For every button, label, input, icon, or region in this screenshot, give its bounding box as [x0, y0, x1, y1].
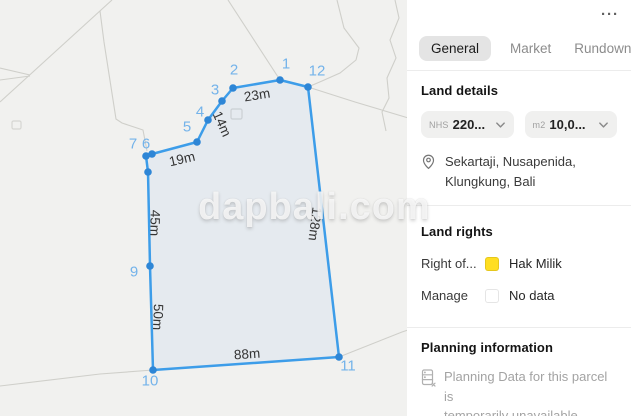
vertex-number-label: 10: [142, 373, 159, 390]
road-line: [308, 87, 415, 120]
right-of-value: Hak Milik: [509, 256, 562, 271]
building-footprint: [12, 121, 21, 129]
location-pin-icon: [421, 153, 436, 170]
vertex-number-label: 12: [309, 63, 326, 80]
parcel-vertex-dot: [218, 97, 226, 105]
planning-section: Planning information Planning Data for t…: [407, 328, 631, 416]
parcel-id-dropdown[interactable]: NHS 220...: [421, 111, 514, 138]
land-details-heading: Land details: [421, 83, 617, 98]
vertex-number-label: 2: [230, 62, 238, 79]
land-detail-chips: NHS 220... m2 10,0...: [421, 111, 617, 138]
area-label: m2: [533, 120, 546, 130]
details-panel: ··· General Market Rundown Land details …: [407, 0, 631, 416]
location-row: Sekartaji, Nusapenida, Klungkung, Bali: [421, 152, 617, 191]
planning-message-line2: temporarily unavailable: [444, 406, 617, 416]
location-line2: Klungkung, Bali: [445, 172, 576, 192]
vertex-number-label: 4: [196, 104, 204, 121]
planning-message: Planning Data for this parcel is tempora…: [444, 367, 617, 416]
road-line: [0, 370, 153, 386]
vertex-number-label: 7: [129, 136, 137, 153]
vertex-number-label: 9: [130, 264, 138, 281]
parcel-vertex-dot: [142, 152, 150, 160]
road-line: [0, 68, 30, 75]
road-line: [100, 11, 147, 151]
parcel-id-label: NHS: [429, 120, 449, 130]
app-window: 1234567910111223m14m19m45m50m88m128m dap…: [0, 0, 631, 416]
right-of-label: Right of...: [421, 256, 485, 271]
land-rights-section: Land rights Right of... Hak Milik Manage…: [407, 206, 631, 327]
location-line1: Sekartaji, Nusapenida,: [445, 152, 576, 172]
manage-value: No data: [509, 288, 555, 303]
manage-row: Manage No data: [421, 288, 617, 303]
parcel-vertex-dot: [204, 116, 212, 124]
tab-bar: General Market Rundown: [407, 0, 631, 61]
edge-length-label: 45m: [147, 210, 162, 237]
right-of-color-swatch: [485, 257, 499, 271]
area-dropdown[interactable]: m2 10,0...: [525, 111, 618, 138]
parcel-vertex-dot: [276, 76, 284, 84]
planning-message-line1: Planning Data for this parcel is: [444, 367, 617, 406]
vertex-number-label: 6: [142, 136, 150, 153]
manage-label: Manage: [421, 288, 485, 303]
right-of-row: Right of... Hak Milik: [421, 256, 617, 271]
planning-message-row: Planning Data for this parcel is tempora…: [421, 367, 617, 416]
chevron-down-icon: [495, 121, 506, 129]
planning-heading: Planning information: [421, 340, 617, 355]
parcel-vertex-dot: [144, 168, 152, 176]
land-rights-heading: Land rights: [421, 224, 617, 239]
vertex-number-label: 11: [340, 358, 356, 375]
tab-general[interactable]: General: [419, 36, 491, 61]
edge-length-label: 50m: [150, 304, 166, 331]
manage-color-swatch: [485, 289, 499, 303]
parcel-id-value: 220...: [453, 117, 489, 132]
parcel-vertex-dot: [304, 83, 312, 91]
tab-rundown[interactable]: Rundown: [570, 36, 631, 61]
edge-length-label: 88m: [233, 346, 260, 363]
tab-market[interactable]: Market: [506, 36, 555, 61]
land-details-section: Land details NHS 220... m2 10,0...: [407, 71, 631, 205]
more-options-icon: ···: [601, 6, 619, 23]
more-options-button[interactable]: ···: [601, 6, 619, 23]
road-line: [0, 0, 112, 102]
parcel-vertex-dot: [193, 138, 201, 146]
chevron-down-icon: [598, 121, 609, 129]
no-data-document-icon: [421, 369, 436, 387]
parcel-vertex-dot: [146, 262, 154, 270]
vertex-number-label: 3: [211, 82, 219, 99]
parcel-vertex-dot: [229, 84, 237, 92]
location-text: Sekartaji, Nusapenida, Klungkung, Bali: [445, 152, 576, 191]
road-line: [339, 330, 408, 357]
vertex-number-label: 1: [282, 56, 290, 73]
vertex-number-label: 5: [183, 119, 191, 136]
area-value: 10,0...: [549, 117, 592, 132]
